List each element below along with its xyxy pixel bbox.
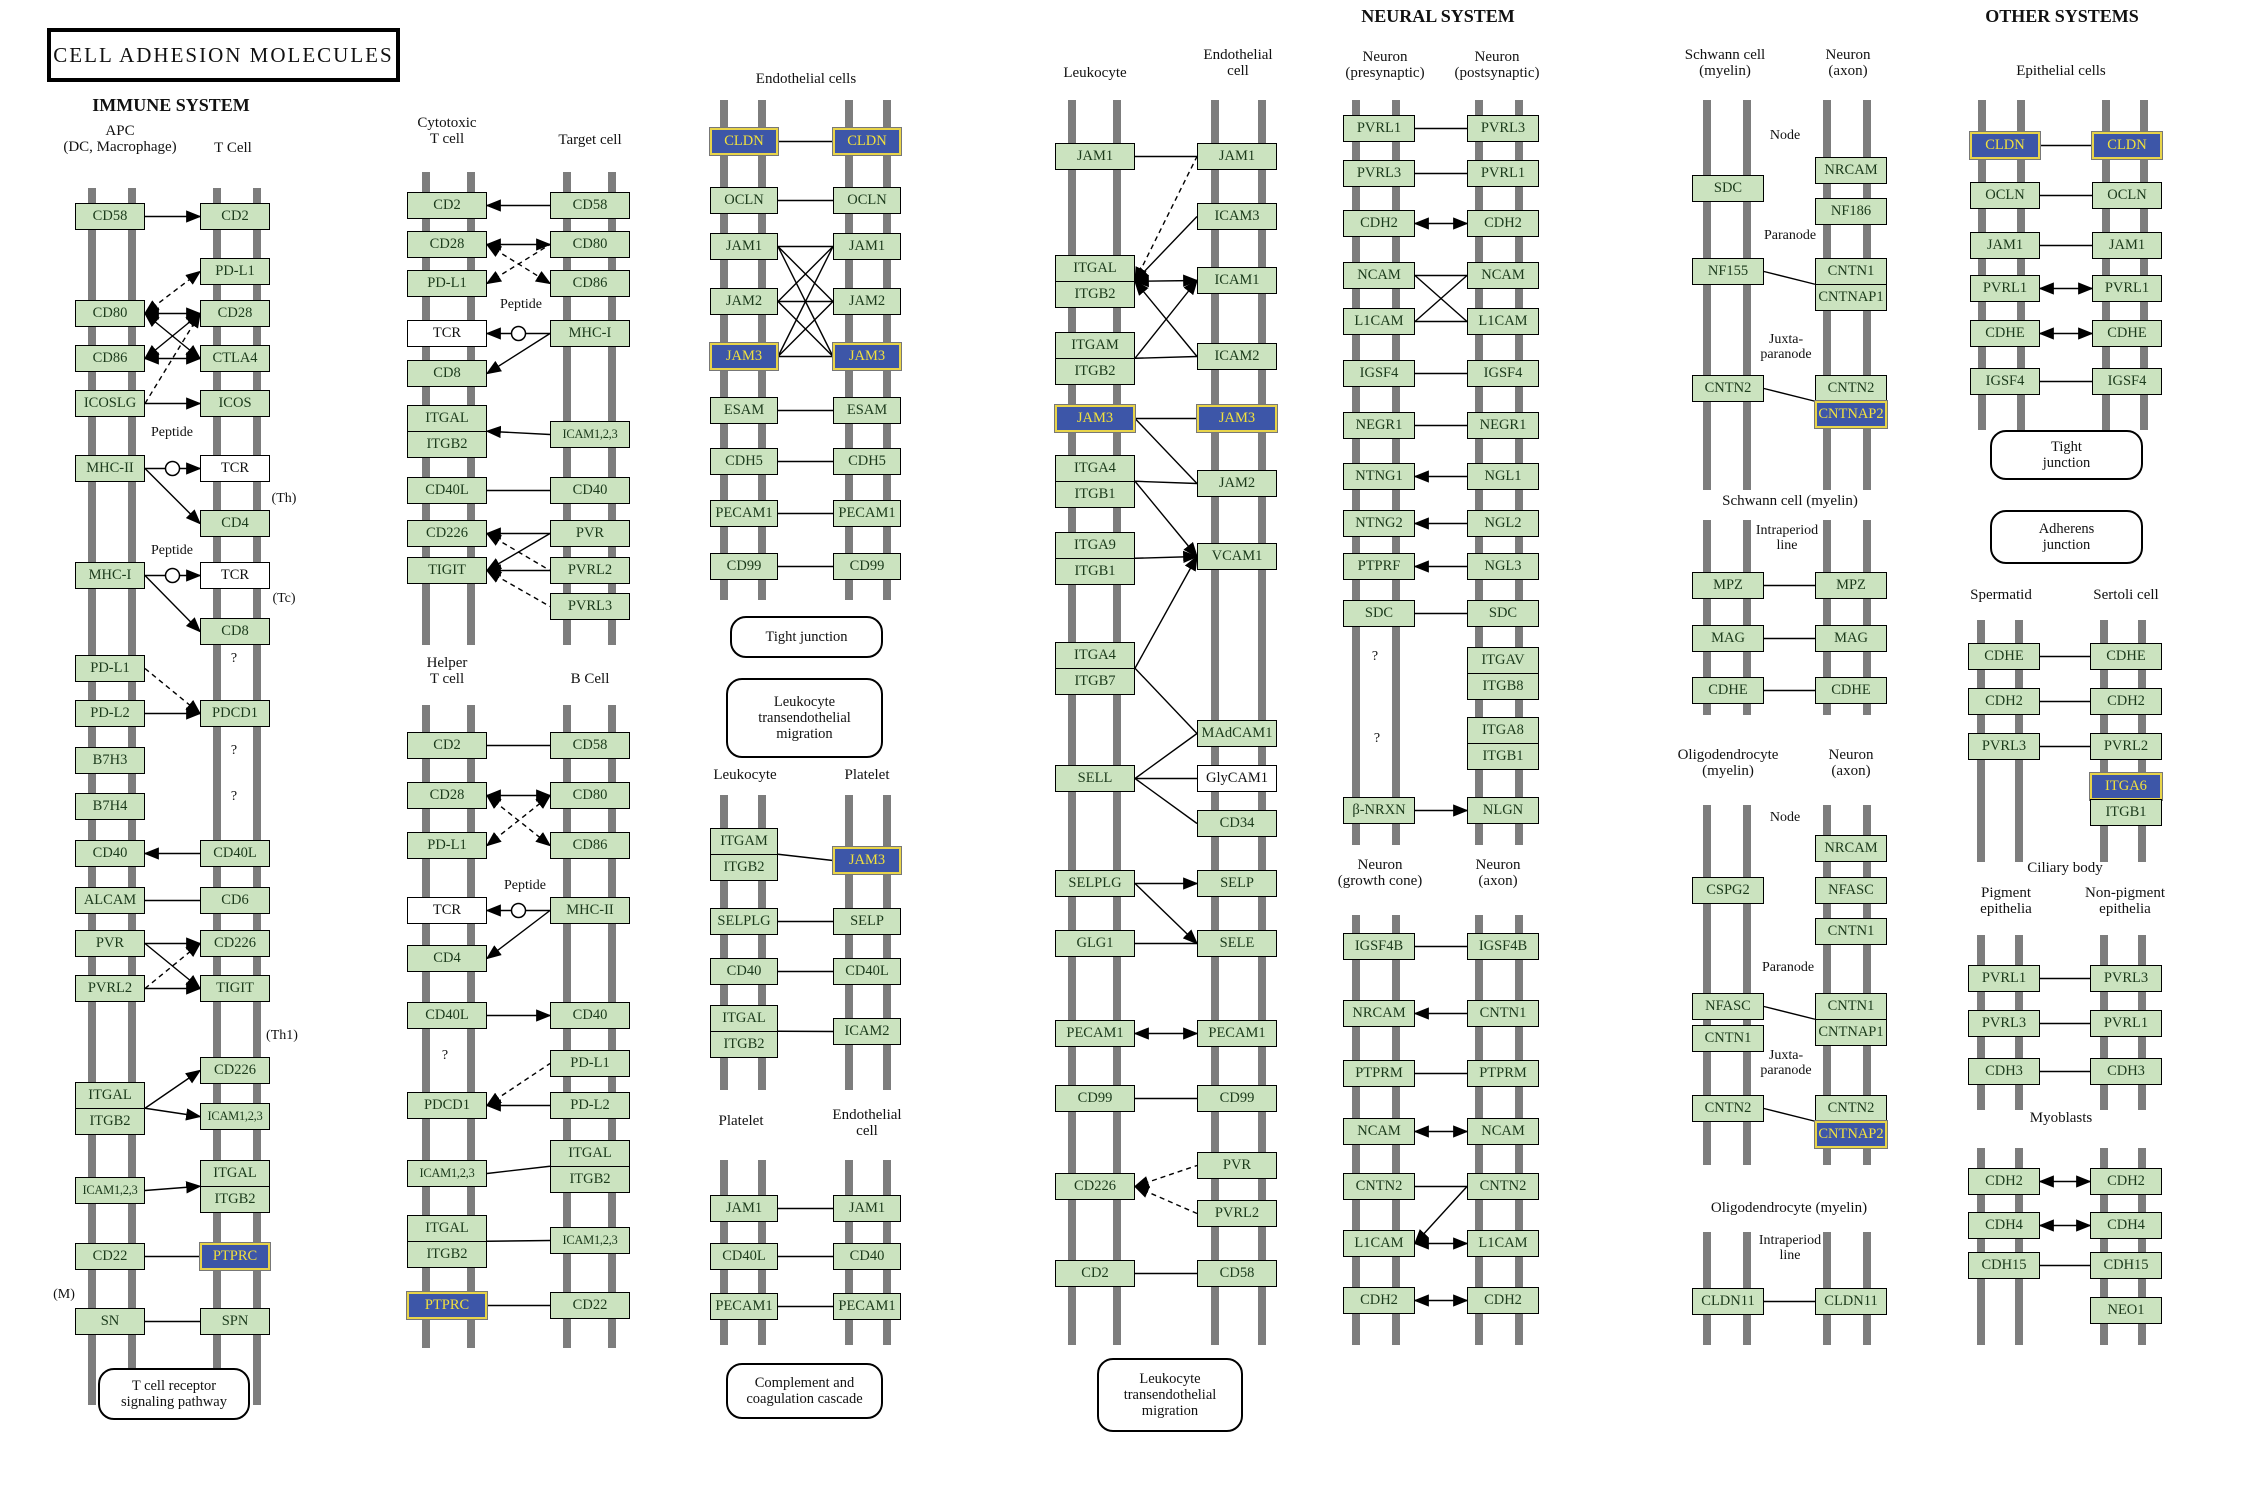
gene-box-jam1[interactable]: JAM1	[833, 233, 901, 260]
gene-box-cd58[interactable]: CD58	[550, 732, 630, 759]
gene-box-nf155[interactable]: NF155	[1692, 258, 1764, 285]
gene-box-pvrl2[interactable]: PVRL2	[1197, 1200, 1277, 1227]
gene-box-jam3[interactable]: JAM3	[1197, 405, 1277, 432]
gene-box-jam1[interactable]: JAM1	[1055, 143, 1135, 170]
gene-box-nfasc[interactable]: NFASC	[1815, 877, 1887, 904]
gene-box-jam2[interactable]: JAM2	[1197, 470, 1277, 497]
gene-box-ncam[interactable]: NCAM	[1343, 262, 1415, 289]
gene-box-itgb2[interactable]: ITGB2	[407, 1241, 487, 1268]
gene-box-jam1[interactable]: JAM1	[833, 1195, 901, 1222]
gene-box-pvr[interactable]: PVR	[75, 930, 145, 957]
gene-box-icoslg[interactable]: ICOSLG	[75, 390, 145, 417]
gene-box-pvrl2[interactable]: PVRL2	[2090, 733, 2162, 760]
gene-box-igsf4[interactable]: IGSF4	[1970, 368, 2040, 395]
gene-box-group: CD6	[200, 887, 270, 914]
gene-box-group: PECAM1	[833, 1293, 901, 1320]
gene-box-mhci[interactable]: MHC-I	[550, 320, 630, 347]
gene-box-cdhe[interactable]: CDHE	[2092, 320, 2162, 347]
gene-box-pvr[interactable]: PVR	[1197, 1152, 1277, 1179]
gene-box-cd226[interactable]: CD226	[407, 520, 487, 547]
gene-box-cspg2[interactable]: CSPG2	[1692, 877, 1764, 904]
gene-box-mhcii[interactable]: MHC-II	[75, 455, 145, 482]
gene-box-cldn[interactable]: CLDN	[833, 128, 901, 155]
gene-box-cntnap1[interactable]: CNTNAP1	[1815, 1019, 1887, 1046]
gene-box-cntn2[interactable]: CNTN2	[1692, 1095, 1764, 1122]
gene-box-cntn2[interactable]: CNTN2	[1467, 1173, 1539, 1200]
gene-box-cd99[interactable]: CD99	[710, 553, 778, 580]
gene-box-itga8[interactable]: ITGA8	[1467, 717, 1539, 744]
gene-box-itgal[interactable]: ITGAL	[1055, 255, 1135, 282]
gene-box-cdh2[interactable]: CDH2	[2090, 688, 2162, 715]
gene-box-igsf4b[interactable]: IGSF4B	[1467, 933, 1539, 960]
gene-box-itgb7[interactable]: ITGB7	[1055, 668, 1135, 695]
gene-box-cdh3[interactable]: CDH3	[2090, 1058, 2162, 1085]
gene-box-cdhe[interactable]: CDHE	[1692, 677, 1764, 704]
gene-box-group: OCLN	[2092, 182, 2162, 209]
gene-box-pecam1[interactable]: PECAM1	[710, 1293, 778, 1320]
gene-box-group: CLDN	[1970, 132, 2040, 159]
gene-box-pvrl2[interactable]: PVRL2	[75, 975, 145, 1002]
gene-box-pdl1[interactable]: PD-L1	[407, 270, 487, 297]
gene-box-itgb2[interactable]: ITGB2	[1055, 281, 1135, 308]
gene-box-group: MAG	[1815, 625, 1887, 652]
gene-box-group: TCR	[407, 320, 487, 347]
gene-box-mhci[interactable]: MHC-I	[75, 562, 145, 589]
gene-box-icam123[interactable]: ICAM1,2,3	[550, 421, 630, 448]
gene-box-neo1[interactable]: NEO1	[2090, 1297, 2162, 1324]
gene-box-jam1[interactable]: JAM1	[710, 1195, 778, 1222]
gene-box-itgb2[interactable]: ITGB2	[75, 1108, 145, 1135]
gene-box-cdh3[interactable]: CDH3	[1968, 1058, 2040, 1085]
gene-box-itga9[interactable]: ITGA9	[1055, 532, 1135, 559]
gene-box-selplg[interactable]: SELPLG	[1055, 870, 1135, 897]
gene-box-pvrl3[interactable]: PVRL3	[550, 593, 630, 620]
gene-box-vcam1[interactable]: VCAM1	[1197, 543, 1277, 570]
gene-box-sdc[interactable]: SDC	[1467, 600, 1539, 627]
annotation-label: Intraperiod line	[1756, 524, 1818, 553]
gene-box-igsf4[interactable]: IGSF4	[1343, 360, 1415, 387]
gene-box-jam2[interactable]: JAM2	[710, 288, 778, 315]
gene-box-icam123[interactable]: ICAM1,2,3	[75, 1177, 145, 1204]
gene-box-itgb2[interactable]: ITGB2	[550, 1166, 630, 1193]
gene-box-cldn11[interactable]: CLDN11	[1815, 1288, 1887, 1315]
gene-box-group: PECAM1	[1055, 1020, 1135, 1047]
gene-box-itgal[interactable]: ITGAL	[75, 1082, 145, 1109]
gene-box-cdh2[interactable]: CDH2	[1467, 210, 1539, 237]
gene-box-nlgn[interactable]: NLGN	[1467, 797, 1539, 824]
gene-box-cntn1[interactable]: CNTN1	[1692, 1025, 1764, 1052]
cell-type-label: Myoblasts	[2030, 1111, 2093, 1127]
gene-box-mhcii[interactable]: MHC-II	[550, 897, 630, 924]
gene-box-icam123[interactable]: ICAM1,2,3	[200, 1103, 270, 1130]
membrane-rail	[1703, 100, 1711, 490]
gene-box-mpz[interactable]: MPZ	[1815, 572, 1887, 599]
gene-box-pdcd1[interactable]: PDCD1	[407, 1092, 487, 1119]
gene-box-icam3[interactable]: ICAM3	[1197, 203, 1277, 230]
gene-box-itga4[interactable]: ITGA4	[1055, 455, 1135, 482]
gene-box-cdh2[interactable]: CDH2	[1968, 1168, 2040, 1195]
gene-box-jam3[interactable]: JAM3	[1055, 405, 1135, 432]
gene-box-itgam[interactable]: ITGAM	[710, 828, 778, 855]
gene-box-group: CDHE	[1968, 643, 2040, 670]
gene-box-cd99[interactable]: CD99	[833, 553, 901, 580]
gene-box-group: JAM1	[2092, 232, 2162, 259]
gene-box-cdh5[interactable]: CDH5	[710, 448, 778, 475]
pathway-link-box[interactable]: Leukocyte transendothelial migration	[1097, 1358, 1243, 1432]
annotation-label: Peptide	[504, 879, 546, 894]
gene-box-cd22[interactable]: CD22	[75, 1243, 145, 1270]
gene-box-group: PD-L2	[550, 1092, 630, 1119]
gene-box-group: CNTN1CNTNAP1	[1815, 993, 1887, 1046]
gene-box-itgal[interactable]: ITGAL	[407, 1215, 487, 1242]
gene-box-tigit[interactable]: TIGIT	[200, 975, 270, 1002]
gene-box-cdh15[interactable]: CDH15	[2090, 1252, 2162, 1279]
gene-box-cd226[interactable]: CD226	[200, 1057, 270, 1084]
gene-box-group: NF155	[1692, 258, 1764, 285]
gene-box-itgb1[interactable]: ITGB1	[1467, 743, 1539, 770]
gene-box-cd40l[interactable]: CD40L	[710, 1243, 778, 1270]
gene-box-pvr[interactable]: PVR	[550, 520, 630, 547]
pathway-link-box[interactable]: Leukocyte transendothelial migration	[726, 678, 883, 758]
gene-box-pecam1[interactable]: PECAM1	[833, 1293, 901, 1320]
gene-box-cntn2[interactable]: CNTN2	[1815, 375, 1887, 402]
gene-box-jam2[interactable]: JAM2	[833, 288, 901, 315]
gene-box-pvrl3[interactable]: PVRL3	[1343, 160, 1415, 187]
gene-box-ocln[interactable]: OCLN	[710, 187, 778, 214]
gene-box-cd40[interactable]: CD40	[710, 958, 778, 985]
gene-box-sele[interactable]: SELE	[1197, 930, 1277, 957]
gene-box-ptprf[interactable]: PTPRF	[1343, 553, 1415, 580]
gene-box-cntnap2[interactable]: CNTNAP2	[1815, 401, 1887, 428]
gene-box-cdh2[interactable]: CDH2	[1467, 1287, 1539, 1314]
gene-box-cd22[interactable]: CD22	[550, 1292, 630, 1319]
gene-box-pvrl1[interactable]: PVRL1	[1968, 965, 2040, 992]
gene-box-cdh2[interactable]: CDH2	[1343, 210, 1415, 237]
gene-box-cdhe[interactable]: CDHE	[1968, 643, 2040, 670]
gene-box-cd8[interactable]: CD8	[407, 360, 487, 387]
gene-box-pvrl1[interactable]: PVRL1	[1970, 275, 2040, 302]
gene-box-mpz[interactable]: MPZ	[1692, 572, 1764, 599]
gene-box-icam1[interactable]: ICAM1	[1197, 267, 1277, 294]
gene-box-pecam1[interactable]: PECAM1	[1197, 1020, 1277, 1047]
gene-box-group: IGSF4	[1467, 360, 1539, 387]
gene-box-itgb8[interactable]: ITGB8	[1467, 673, 1539, 700]
gene-box-cntnap1[interactable]: CNTNAP1	[1815, 284, 1887, 311]
gene-box-spn[interactable]: SPN	[200, 1308, 270, 1335]
gene-box-tcr[interactable]: TCR	[407, 897, 487, 924]
gene-box-pdl1[interactable]: PD-L1	[550, 1050, 630, 1077]
gene-box-group: ITGAVITGB8	[1467, 647, 1539, 700]
gene-box-cntnap2[interactable]: CNTNAP2	[1815, 1121, 1887, 1148]
gene-box-cd58[interactable]: CD58	[550, 192, 630, 219]
gene-box-igsf4b[interactable]: IGSF4B	[1343, 933, 1415, 960]
gene-box-group: JAM1	[1197, 143, 1277, 170]
gene-box-selp[interactable]: SELP	[1197, 870, 1277, 897]
gene-box-group: CD58	[75, 203, 145, 230]
gene-box-itgb2[interactable]: ITGB2	[710, 854, 778, 881]
gene-box-mag[interactable]: MAG	[1692, 625, 1764, 652]
gene-box-cd34[interactable]: CD34	[1197, 810, 1277, 837]
gene-box-esam[interactable]: ESAM	[833, 397, 901, 424]
gene-box-cd2[interactable]: CD2	[200, 203, 270, 230]
gene-box-group: GLG1	[1055, 930, 1135, 957]
gene-box-cd226[interactable]: CD226	[1055, 1173, 1135, 1200]
gene-box-cd40l[interactable]: CD40L	[407, 477, 487, 504]
gene-box-sdc[interactable]: SDC	[1692, 175, 1764, 202]
gene-box-pvrl3[interactable]: PVRL3	[1968, 1010, 2040, 1037]
gene-box-ntng2[interactable]: NTNG2	[1343, 510, 1415, 537]
gene-box-itga4[interactable]: ITGA4	[1055, 642, 1135, 669]
gene-box-ngl1[interactable]: NGL1	[1467, 463, 1539, 490]
gene-box-cd80[interactable]: CD80	[550, 231, 630, 258]
gene-box-itgal[interactable]: ITGAL	[407, 405, 487, 432]
gene-box-jam1[interactable]: JAM1	[2092, 232, 2162, 259]
gene-box-cd99[interactable]: CD99	[1197, 1085, 1277, 1112]
gene-box-cdh2[interactable]: CDH2	[1343, 1287, 1415, 1314]
gene-box-cd86[interactable]: CD86	[550, 832, 630, 859]
gene-box-group: ESAM	[710, 397, 778, 424]
gene-box-cntn1[interactable]: CNTN1	[1815, 918, 1887, 945]
gene-box-group: CD40L	[200, 840, 270, 867]
gene-box-cntn2[interactable]: CNTN2	[1343, 1173, 1415, 1200]
cell-type-label: Pigment epithelia	[1980, 886, 2032, 918]
gene-box-cldn11[interactable]: CLDN11	[1692, 1288, 1764, 1315]
gene-box-jam3[interactable]: JAM3	[710, 343, 778, 370]
gene-box-pvrl1[interactable]: PVRL1	[2092, 275, 2162, 302]
gene-box-group: CNTN1	[1467, 1000, 1539, 1027]
gene-box-cldn[interactable]: CLDN	[2092, 132, 2162, 159]
gene-box-tcr[interactable]: TCR	[407, 320, 487, 347]
gene-box-cd40[interactable]: CD40	[550, 477, 630, 504]
gene-box-group: TIGIT	[200, 975, 270, 1002]
gene-box-itgb2[interactable]: ITGB2	[407, 431, 487, 458]
gene-box-glg1[interactable]: GLG1	[1055, 930, 1135, 957]
gene-box-igsf4[interactable]: IGSF4	[2092, 368, 2162, 395]
gene-box-tcr[interactable]: TCR	[200, 562, 270, 589]
gene-box-tcr[interactable]: TCR	[200, 455, 270, 482]
gene-box-cd40[interactable]: CD40	[833, 1243, 901, 1270]
gene-box-ocln[interactable]: OCLN	[833, 187, 901, 214]
gene-box-cldn[interactable]: CLDN	[1970, 132, 2040, 159]
gene-box-l1cam[interactable]: L1CAM	[1343, 308, 1415, 335]
gene-box-b7h4[interactable]: B7H4	[75, 793, 145, 820]
gene-box-group: CD58	[550, 192, 630, 219]
gene-box-pecam1[interactable]: PECAM1	[833, 500, 901, 527]
gene-box-cntn1[interactable]: CNTN1	[1815, 258, 1887, 285]
gene-box-group: CDH2	[2090, 1168, 2162, 1195]
gene-box-l1cam[interactable]: L1CAM	[1467, 1230, 1539, 1257]
gene-box-itgal[interactable]: ITGAL	[550, 1140, 630, 1167]
gene-box-cdh2[interactable]: CDH2	[2090, 1168, 2162, 1195]
gene-box-cdh2[interactable]: CDH2	[1968, 688, 2040, 715]
gene-box-cd80[interactable]: CD80	[75, 300, 145, 327]
gene-box-nf186[interactable]: NF186	[1815, 198, 1887, 225]
gene-box-cdh4[interactable]: CDH4	[2090, 1212, 2162, 1239]
gene-box-icam2[interactable]: ICAM2	[833, 1018, 901, 1045]
gene-box-glycam1[interactable]: GlyCAM1	[1197, 765, 1277, 792]
gene-box-itgb2[interactable]: ITGB2	[1055, 358, 1135, 385]
gene-box-igsf4[interactable]: IGSF4	[1467, 360, 1539, 387]
gene-box-ocln[interactable]: OCLN	[2092, 182, 2162, 209]
gene-box-l1cam[interactable]: L1CAM	[1467, 308, 1539, 335]
gene-box-itgb1[interactable]: ITGB1	[1055, 558, 1135, 585]
gene-box-cd58[interactable]: CD58	[1197, 1260, 1277, 1287]
gene-box-pvrl1[interactable]: PVRL1	[1343, 115, 1415, 142]
gene-box-ptprm[interactable]: PTPRM	[1467, 1060, 1539, 1087]
gene-box-nrxn[interactable]: β-NRXN	[1343, 797, 1415, 824]
gene-box-cd6[interactable]: CD6	[200, 887, 270, 914]
gene-box-cd86[interactable]: CD86	[550, 270, 630, 297]
gene-box-selplg[interactable]: SELPLG	[710, 908, 778, 935]
cell-type-label: Leukocyte	[713, 768, 776, 784]
gene-box-cdh15[interactable]: CDH15	[1968, 1252, 2040, 1279]
gene-box-ptprc[interactable]: PTPRC	[407, 1292, 487, 1319]
gene-box-cntn2[interactable]: CNTN2	[1692, 375, 1764, 402]
gene-box-pvrl3[interactable]: PVRL3	[2090, 965, 2162, 992]
gene-box-cd40l[interactable]: CD40L	[407, 1002, 487, 1029]
gene-box-pvrl3[interactable]: PVRL3	[1968, 733, 2040, 760]
gene-box-jam1[interactable]: JAM1	[710, 233, 778, 260]
gene-box-ntng1[interactable]: NTNG1	[1343, 463, 1415, 490]
gene-box-group: MHC-I	[75, 562, 145, 589]
gene-box-cd28[interactable]: CD28	[200, 300, 270, 327]
pathway-link-box[interactable]: Tight junction	[730, 616, 883, 658]
gene-box-group: CD34	[1197, 810, 1277, 837]
gene-box-group: CNTN1CNTNAP1	[1815, 258, 1887, 311]
gene-box-pdl1[interactable]: PD-L1	[75, 655, 145, 682]
gene-box-ctla4[interactable]: CTLA4	[200, 345, 270, 372]
gene-box-pdl2[interactable]: PD-L2	[75, 700, 145, 727]
gene-box-jam3[interactable]: JAM3	[833, 343, 901, 370]
gene-box-cd4[interactable]: CD4	[200, 510, 270, 537]
gene-box-cntn1[interactable]: CNTN1	[1815, 993, 1887, 1020]
gene-box-itgb2[interactable]: ITGB2	[200, 1186, 270, 1213]
gene-box-cd40[interactable]: CD40	[75, 840, 145, 867]
gene-box-group: SN	[75, 1308, 145, 1335]
gene-box-group: CLDN	[833, 128, 901, 155]
gene-box-pdl2[interactable]: PD-L2	[550, 1092, 630, 1119]
gene-box-pecam1[interactable]: PECAM1	[710, 500, 778, 527]
gene-box-itgav[interactable]: ITGAV	[1467, 647, 1539, 674]
gene-box-cd80[interactable]: CD80	[550, 782, 630, 809]
pathway-link-box[interactable]: Tight junction	[1990, 430, 2143, 480]
gene-box-madcam1[interactable]: MAdCAM1	[1197, 720, 1277, 747]
gene-box-selp[interactable]: SELP	[833, 908, 901, 935]
gene-box-ptprm[interactable]: PTPRM	[1343, 1060, 1415, 1087]
gene-box-group: CLDN11	[1692, 1288, 1764, 1315]
gene-box-pdl1[interactable]: PD-L1	[407, 832, 487, 859]
gene-box-cd2[interactable]: CD2	[1055, 1260, 1135, 1287]
gene-box-icam2[interactable]: ICAM2	[1197, 343, 1277, 370]
gene-box-cd28[interactable]: CD28	[407, 231, 487, 258]
gene-box-itgb1[interactable]: ITGB1	[2090, 799, 2162, 826]
gene-box-itgb1[interactable]: ITGB1	[1055, 481, 1135, 508]
gene-box-b7h3[interactable]: B7H3	[75, 747, 145, 774]
gene-box-sell[interactable]: SELL	[1055, 765, 1135, 792]
gene-box-itga6[interactable]: ITGA6	[2090, 773, 2162, 800]
gene-box-ncam[interactable]: NCAM	[1467, 1118, 1539, 1145]
gene-box-nrcam[interactable]: NRCAM	[1815, 835, 1887, 862]
pathway-link-box[interactable]: T cell receptor signaling pathway	[98, 1368, 250, 1420]
gene-box-cd2[interactable]: CD2	[407, 732, 487, 759]
gene-box-group: NRCAM	[1815, 835, 1887, 862]
gene-box-ncam[interactable]: NCAM	[1343, 1118, 1415, 1145]
gene-box-ocln[interactable]: OCLN	[1970, 182, 2040, 209]
gene-box-group: ITGALITGB2	[710, 1005, 778, 1058]
gene-box-itgb2[interactable]: ITGB2	[710, 1031, 778, 1058]
gene-box-cd28[interactable]: CD28	[407, 782, 487, 809]
gene-box-cdhe[interactable]: CDHE	[2090, 643, 2162, 670]
gene-box-cldn[interactable]: CLDN	[710, 128, 778, 155]
gene-box-tigit[interactable]: TIGIT	[407, 557, 487, 584]
gene-box-ptprc[interactable]: PTPRC	[200, 1243, 270, 1270]
gene-box-itgal[interactable]: ITGAL	[200, 1160, 270, 1187]
gene-box-sdc[interactable]: SDC	[1343, 600, 1415, 627]
gene-box-cd40[interactable]: CD40	[550, 1002, 630, 1029]
gene-box-itgam[interactable]: ITGAM	[1055, 332, 1135, 359]
gene-box-pecam1[interactable]: PECAM1	[1055, 1020, 1135, 1047]
gene-box-ncam[interactable]: NCAM	[1467, 262, 1539, 289]
gene-box-cdh5[interactable]: CDH5	[833, 448, 901, 475]
gene-box-cd2[interactable]: CD2	[407, 192, 487, 219]
gene-box-jam1[interactable]: JAM1	[1197, 143, 1277, 170]
gene-box-pdl1[interactable]: PD-L1	[200, 258, 270, 285]
gene-box-ngl3[interactable]: NGL3	[1467, 553, 1539, 580]
gene-box-pvrl1[interactable]: PVRL1	[2090, 1010, 2162, 1037]
gene-box-cd58[interactable]: CD58	[75, 203, 145, 230]
gene-box-cd99[interactable]: CD99	[1055, 1085, 1135, 1112]
gene-box-jam3[interactable]: JAM3	[833, 847, 901, 874]
gene-box-cdhe[interactable]: CDHE	[1970, 320, 2040, 347]
gene-box-mag[interactable]: MAG	[1815, 625, 1887, 652]
gene-box-pvrl2[interactable]: PVRL2	[550, 557, 630, 584]
gene-box-group: MHC-II	[550, 897, 630, 924]
pathway-link-box[interactable]: Adherens junction	[1990, 510, 2143, 564]
gene-box-pdcd1[interactable]: PDCD1	[200, 700, 270, 727]
gene-box-cdh4[interactable]: CDH4	[1968, 1212, 2040, 1239]
gene-box-esam[interactable]: ESAM	[710, 397, 778, 424]
gene-box-cd86[interactable]: CD86	[75, 345, 145, 372]
gene-box-negr1[interactable]: NEGR1	[1467, 412, 1539, 439]
gene-box-group: PECAM1	[833, 500, 901, 527]
gene-box-alcam[interactable]: ALCAM	[75, 887, 145, 914]
gene-box-icos[interactable]: ICOS	[200, 390, 270, 417]
gene-box-l1cam[interactable]: L1CAM	[1343, 1230, 1415, 1257]
gene-box-icam123[interactable]: ICAM1,2,3	[550, 1227, 630, 1254]
gene-box-cd40l[interactable]: CD40L	[833, 958, 901, 985]
gene-box-icam123[interactable]: ICAM1,2,3	[407, 1160, 487, 1187]
gene-box-nfasc[interactable]: NFASC	[1692, 993, 1764, 1020]
pathway-link-box[interactable]: Complement and coagulation cascade	[726, 1363, 883, 1419]
gene-box-ngl2[interactable]: NGL2	[1467, 510, 1539, 537]
gene-box-jam1[interactable]: JAM1	[1970, 232, 2040, 259]
cell-type-label: T Cell	[214, 141, 252, 157]
gene-box-sn[interactable]: SN	[75, 1308, 145, 1335]
gene-box-cntn1[interactable]: CNTN1	[1467, 1000, 1539, 1027]
gene-box-cd40l[interactable]: CD40L	[200, 840, 270, 867]
gene-box-itgal[interactable]: ITGAL	[710, 1005, 778, 1032]
gene-box-cd4[interactable]: CD4	[407, 945, 487, 972]
gene-box-nrcam[interactable]: NRCAM	[1343, 1000, 1415, 1027]
gene-box-nrcam[interactable]: NRCAM	[1815, 157, 1887, 184]
gene-box-pvrl3[interactable]: PVRL3	[1467, 115, 1539, 142]
gene-box-cd226[interactable]: CD226	[200, 930, 270, 957]
gene-box-pvrl1[interactable]: PVRL1	[1467, 160, 1539, 187]
gene-box-cntn2[interactable]: CNTN2	[1815, 1095, 1887, 1122]
gene-box-cdhe[interactable]: CDHE	[1815, 677, 1887, 704]
gene-box-cd8[interactable]: CD8	[200, 618, 270, 645]
gene-box-negr1[interactable]: NEGR1	[1343, 412, 1415, 439]
